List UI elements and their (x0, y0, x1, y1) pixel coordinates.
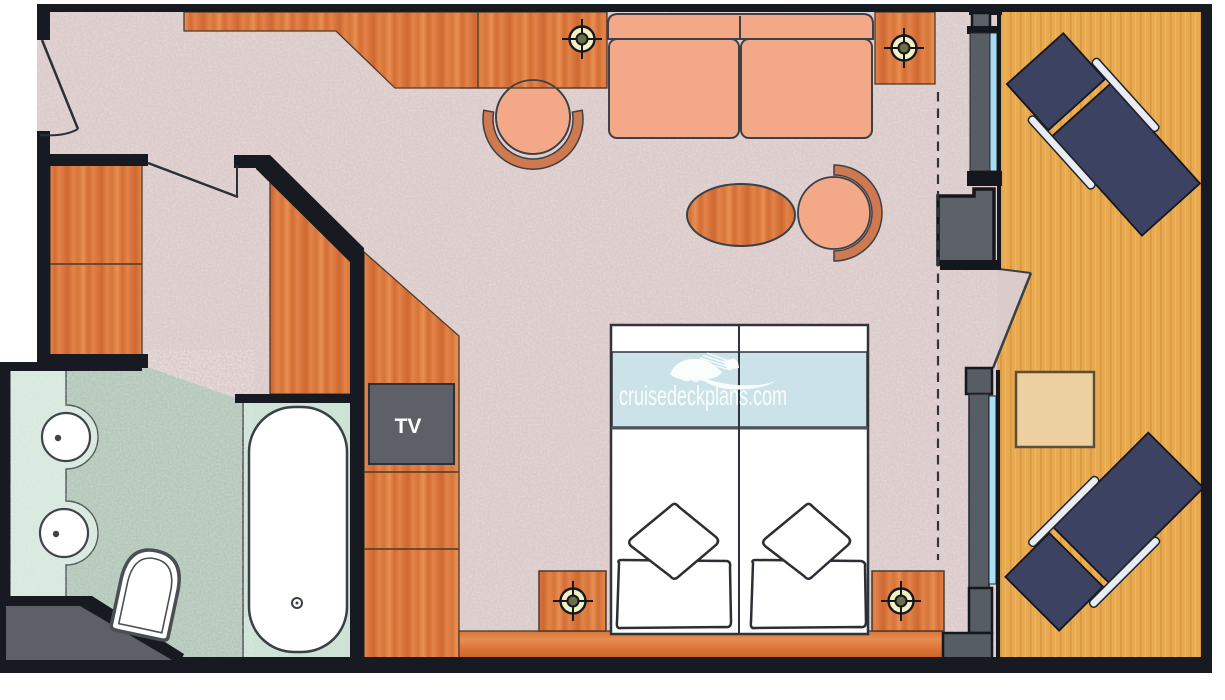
svg-text:cruisedeckplans.com: cruisedeckplans.com (619, 380, 787, 411)
svg-text:TV: TV (395, 415, 422, 438)
